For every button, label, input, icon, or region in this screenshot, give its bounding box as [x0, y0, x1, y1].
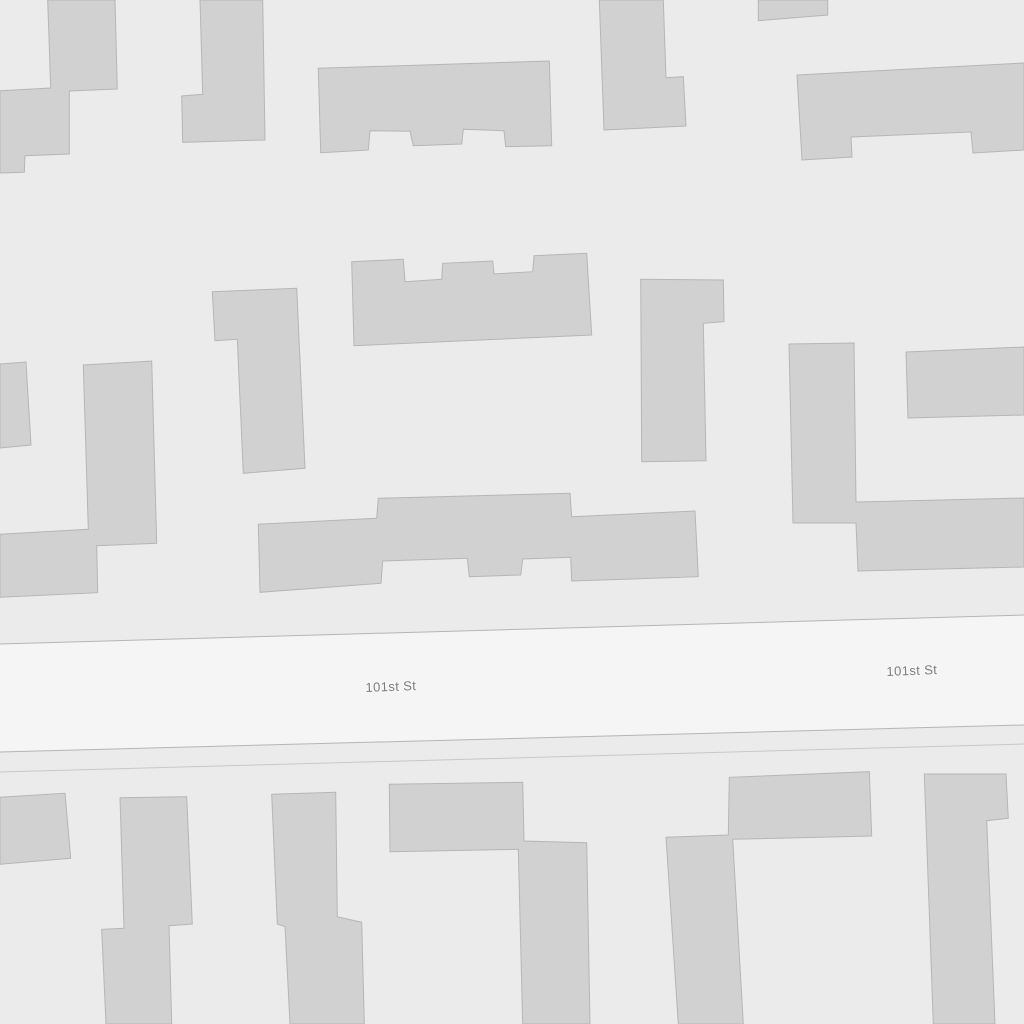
street-name-label-east: 101st St — [886, 662, 937, 679]
street-name-label-west: 101st St — [365, 678, 416, 695]
map-canvas[interactable]: 101st St101st St — [0, 0, 1024, 1024]
map-svg: 101st St101st St — [0, 0, 1024, 1024]
building-top-center — [318, 61, 551, 153]
building-mid-center — [352, 253, 592, 345]
building-left-edge-small — [0, 362, 31, 448]
building-right-edge-rect — [906, 347, 1024, 418]
building-bottom-left-small — [0, 793, 71, 864]
